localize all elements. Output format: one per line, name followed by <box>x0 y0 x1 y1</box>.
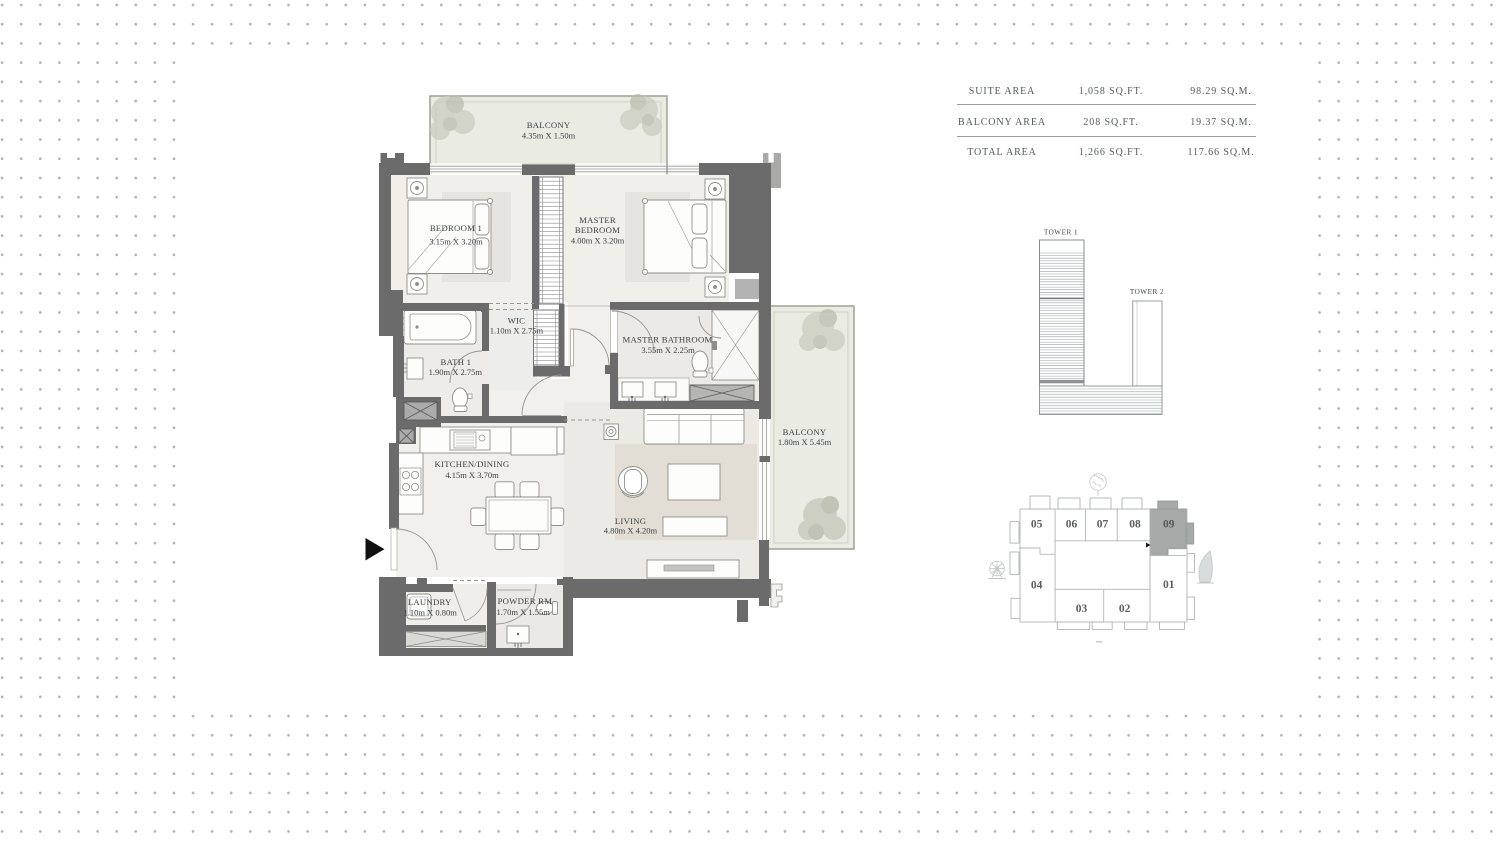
svg-text:1.70m X 1.55m: 1.70m X 1.55m <box>497 607 551 617</box>
svg-text:3.15m X 3.20m: 3.15m X 3.20m <box>429 237 483 247</box>
svg-text:1.10m X 2.75m: 1.10m X 2.75m <box>490 325 544 335</box>
svg-text:4.00m X 3.20m: 4.00m X 3.20m <box>571 236 625 246</box>
svg-text:4.35m X 1.50m: 4.35m X 1.50m <box>522 131 576 141</box>
svg-text:MASTER: MASTER <box>579 215 616 225</box>
svg-text:BATH 1: BATH 1 <box>441 357 472 367</box>
svg-text:BEDROOM: BEDROOM <box>575 225 620 235</box>
svg-text:WIC: WIC <box>508 315 526 325</box>
svg-text:1.90m X 2.75m: 1.90m X 2.75m <box>429 367 483 377</box>
svg-text:05: 05 <box>1031 519 1043 531</box>
svg-text:09: 09 <box>1163 519 1175 531</box>
svg-text:BEDROOM 1: BEDROOM 1 <box>430 223 482 233</box>
svg-text:07: 07 <box>1097 519 1109 531</box>
svg-text:KITCHEN/DINING: KITCHEN/DINING <box>435 459 510 469</box>
svg-text:02: 02 <box>1119 603 1131 615</box>
svg-text:4.80m X 4.20m: 4.80m X 4.20m <box>604 526 658 536</box>
svg-text:03: 03 <box>1076 603 1088 615</box>
svg-text:LAUNDRY: LAUNDRY <box>408 597 452 607</box>
svg-text:08: 08 <box>1129 519 1141 531</box>
svg-text:BALCONY: BALCONY <box>783 427 827 437</box>
svg-text:POWDER RM: POWDER RM <box>498 596 553 606</box>
svg-text:1.80m X 5.45m: 1.80m X 5.45m <box>778 437 832 447</box>
svg-text:01: 01 <box>1163 579 1175 591</box>
svg-text:MASTER BATHROOM: MASTER BATHROOM <box>623 335 713 345</box>
svg-text:BALCONY: BALCONY <box>527 120 571 130</box>
svg-text:3.55m X 2.25m: 3.55m X 2.25m <box>641 345 695 355</box>
svg-text:4.15m X 3.70m: 4.15m X 3.70m <box>445 470 499 480</box>
svg-text:TOWER 1: TOWER 1 <box>1044 229 1078 237</box>
svg-text:04: 04 <box>1031 580 1043 592</box>
svg-text:LIVING: LIVING <box>615 516 646 526</box>
svg-text:06: 06 <box>1066 519 1078 531</box>
svg-text:TOWER 2: TOWER 2 <box>1130 288 1164 296</box>
svg-text:1.10m X 0.80m: 1.10m X 0.80m <box>404 608 458 618</box>
